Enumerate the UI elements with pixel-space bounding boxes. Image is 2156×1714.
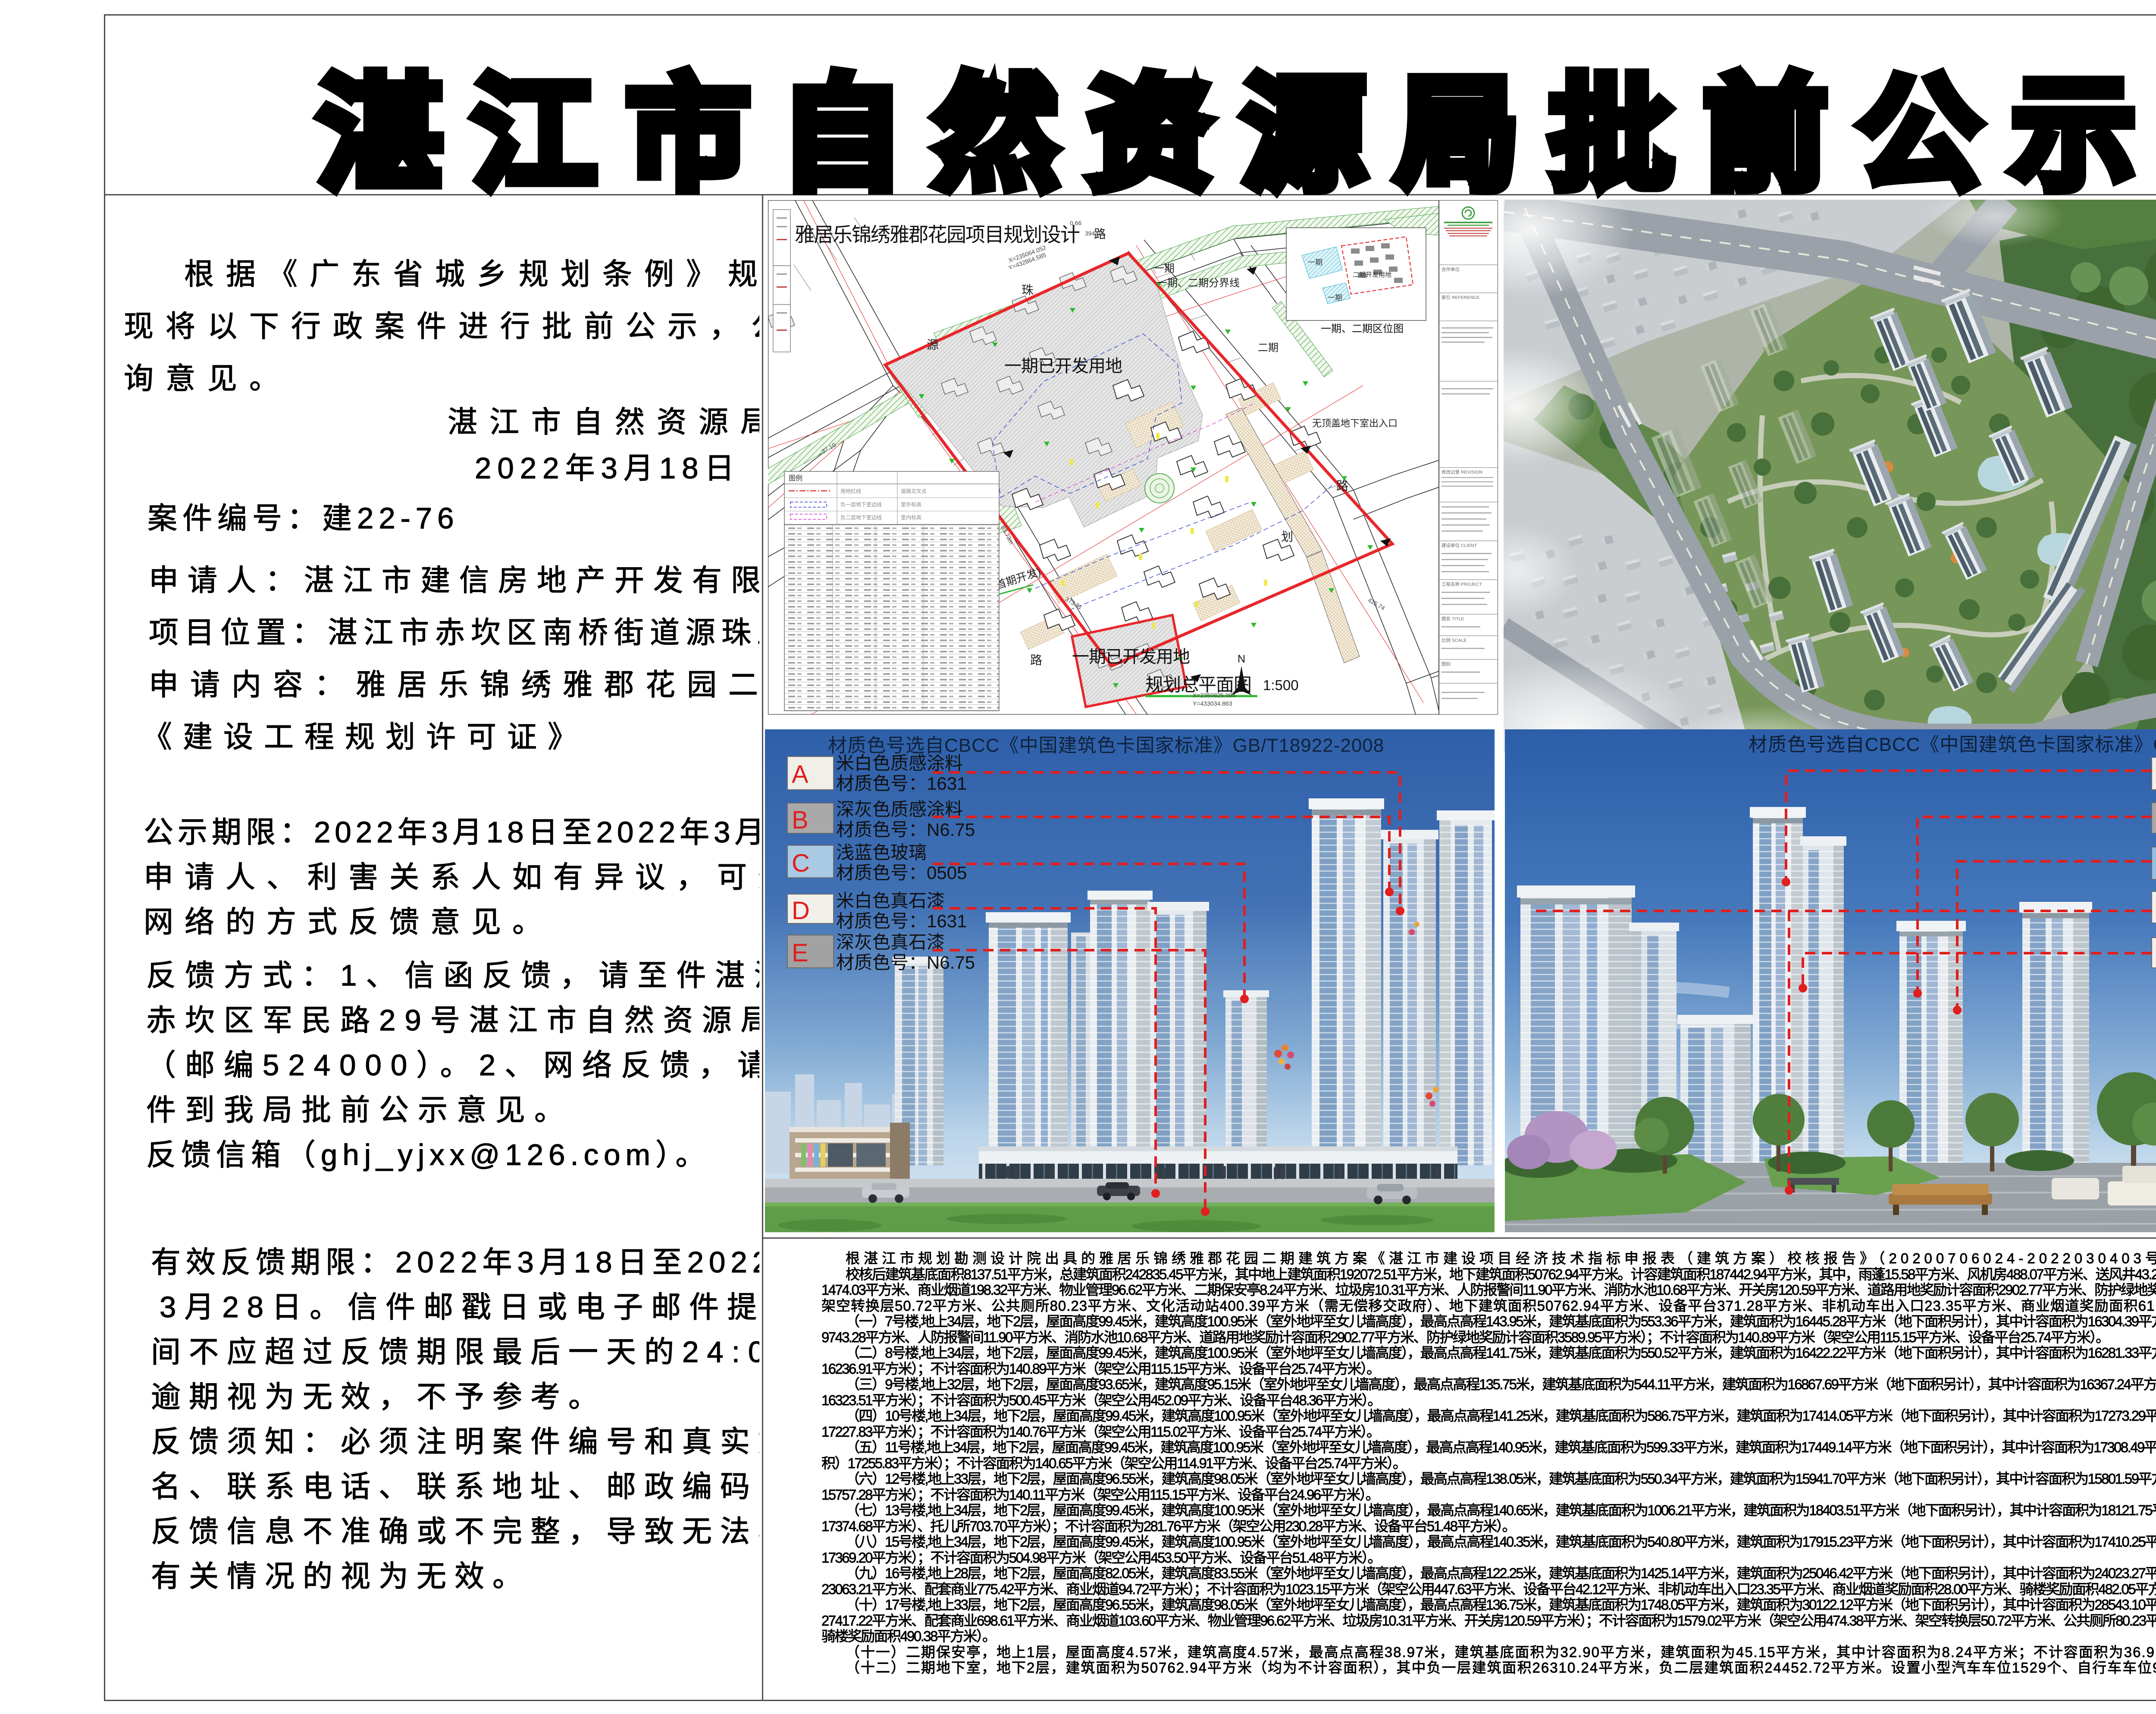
svg-text:图名 TITLE: 图名 TITLE (1442, 616, 1464, 622)
svg-text:材质色号：N6.75: 材质色号：N6.75 (836, 952, 975, 973)
svg-text:394.03: 394.03 (1085, 230, 1103, 237)
svg-text:负二层地下室边线: 负二层地下室边线 (840, 514, 882, 521)
svg-text:米白色真石漆: 米白色真石漆 (836, 891, 945, 911)
svg-text:图例: 图例 (789, 474, 802, 482)
svg-text:雅居乐锦绣雅郡花园项目规划设计: 雅居乐锦绣雅郡花园项目规划设计 (795, 223, 1080, 246)
svg-text:室外标高: 室外标高 (901, 501, 921, 508)
svg-text:道路交叉点: 道路交叉点 (901, 488, 927, 494)
svg-text:深灰色真石漆: 深灰色真石漆 (836, 932, 945, 952)
svg-text:合作单位: 合作单位 (1442, 267, 1460, 272)
svg-text:室内标高: 室内标高 (901, 514, 921, 521)
svg-text:负一层地下室边线: 负一层地下室边线 (840, 501, 882, 508)
svg-text:一期已开发用地: 一期已开发用地 (1004, 357, 1122, 376)
svg-text:材质色号：1631: 材质色号：1631 (836, 911, 967, 931)
svg-text:X=2350825.984: X=2350825.984 (1193, 692, 1235, 699)
svg-text:材质色号：N6.75: 材质色号：N6.75 (836, 819, 975, 840)
svg-text:珠: 珠 (1022, 283, 1034, 297)
svg-text:材质色号：0505: 材质色号：0505 (836, 863, 967, 883)
svg-text:Y=433034.863: Y=433034.863 (1193, 700, 1232, 707)
svg-text:一期已开发用地: 一期已开发用地 (1072, 647, 1190, 666)
svg-text:1:500: 1:500 (1263, 677, 1299, 693)
svg-text:比例 SCALE: 比例 SCALE (1442, 637, 1467, 643)
svg-text:B: B (792, 806, 808, 834)
svg-text:米白色质感涂料: 米白色质感涂料 (836, 753, 963, 773)
svg-text:C: C (792, 849, 810, 877)
svg-text:E: E (792, 939, 808, 967)
svg-text:N: N (1238, 653, 1245, 665)
svg-text:图别: 图别 (1442, 662, 1451, 667)
svg-text:用地红线: 用地红线 (840, 488, 861, 494)
svg-text:材质色号：1631: 材质色号：1631 (836, 773, 967, 794)
svg-text:一期、二期分界线: 一期、二期分界线 (1157, 277, 1240, 289)
svg-text:0.66: 0.66 (1070, 220, 1081, 226)
svg-text:无顶盖地下室出入口: 无顶盖地下室出入口 (1312, 418, 1398, 429)
svg-text:路: 路 (1030, 653, 1042, 667)
svg-text:二期开发用地: 二期开发用地 (1353, 271, 1391, 279)
svg-text:源: 源 (927, 338, 939, 352)
svg-text:一期: 一期 (1154, 263, 1175, 274)
svg-text:一期、二期区位图: 一期、二期区位图 (1321, 323, 1404, 335)
svg-text:材质色号选自CBCC《中国建筑色卡国家标准》GB/T1892: 材质色号选自CBCC《中国建筑色卡国家标准》GB/T18922-2008 (1749, 734, 2156, 755)
svg-text:索引 REFERENCE: 索引 REFERENCE (1442, 295, 1480, 300)
svg-text:一期: 一期 (1328, 294, 1342, 302)
svg-text:二期: 二期 (1258, 342, 1279, 354)
svg-text:划: 划 (1281, 530, 1293, 543)
svg-text:建设单位 CLIENT: 建设单位 CLIENT (1442, 543, 1477, 548)
svg-text:工程名称 PROJECT: 工程名称 PROJECT (1442, 581, 1482, 587)
svg-text:一期: 一期 (1308, 258, 1322, 267)
svg-text:修改记录 REVISION: 修改记录 REVISION (1442, 469, 1482, 475)
svg-text:深灰色质感涂料: 深灰色质感涂料 (836, 799, 963, 819)
svg-text:D: D (792, 897, 810, 925)
svg-text:A: A (792, 760, 808, 788)
svg-text:路: 路 (1336, 479, 1348, 493)
svg-text:浅蓝色玻璃: 浅蓝色玻璃 (836, 842, 927, 863)
